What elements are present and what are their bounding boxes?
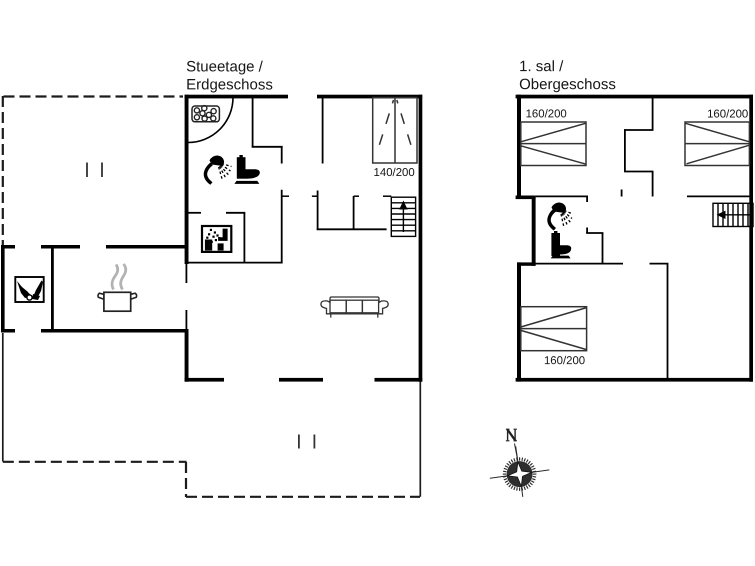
- svg-text:Erdgeschoss: Erdgeschoss: [186, 76, 273, 93]
- svg-text:Obergeschoss: Obergeschoss: [519, 76, 616, 93]
- svg-text:Stueetage /: Stueetage /: [186, 58, 264, 75]
- svg-text:140/200: 140/200: [374, 167, 415, 179]
- svg-text:160/200: 160/200: [526, 108, 567, 120]
- svg-text:160/200: 160/200: [707, 108, 748, 120]
- svg-text:160/200: 160/200: [544, 355, 585, 367]
- svg-text:1. sal /: 1. sal /: [519, 58, 564, 75]
